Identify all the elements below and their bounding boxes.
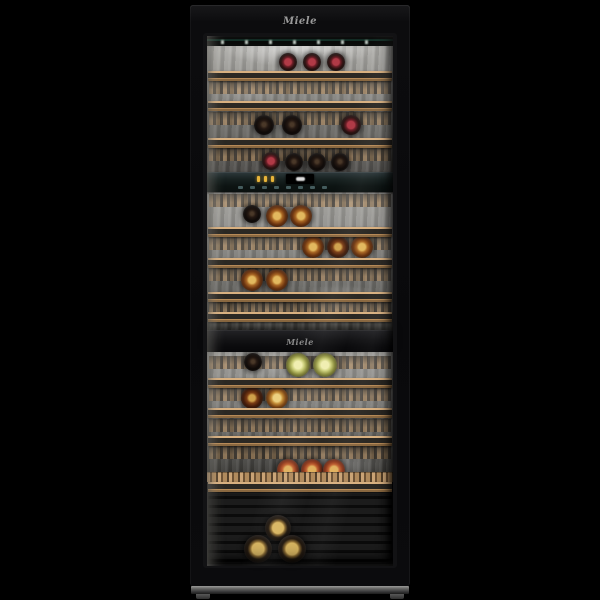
panel-display — [286, 174, 314, 184]
touch-key-7-icon — [310, 186, 315, 189]
led-dots-icon — [212, 40, 388, 44]
wine-bottle-amber-dark — [327, 236, 349, 258]
shelf-slats — [209, 81, 391, 94]
display-readout — [296, 177, 305, 181]
plinth — [191, 586, 409, 594]
wine-bottle-dark — [243, 205, 261, 223]
product-photo-stage: Miele Miele — [0, 0, 600, 600]
wine-bottle-dark — [244, 353, 262, 371]
wine-bottle-white — [286, 353, 310, 377]
wine-bottle-amber — [241, 269, 263, 291]
temperature-indicators — [257, 176, 274, 182]
touch-key-1-icon — [238, 186, 243, 189]
shelf-slats — [209, 268, 391, 281]
zone-divider: Miele — [206, 330, 394, 352]
touch-key-3-icon — [262, 186, 267, 189]
shelf-front-rail — [208, 258, 392, 268]
wine-bottle-amber-light — [266, 387, 288, 409]
brand-logo-top: Miele — [190, 15, 410, 29]
wine-bottle-dark-red — [341, 115, 361, 135]
wine-bottle-amber — [302, 236, 324, 258]
wine-bottle-dark — [331, 153, 349, 171]
shelf-front-rail — [208, 436, 392, 446]
temp-segment-2-icon — [264, 176, 267, 182]
wine-bottle-amber-dark — [241, 387, 263, 409]
wine-bottle-dark-red — [262, 152, 280, 170]
wine-bottle-dark-red — [327, 53, 345, 71]
wood-shelf-full — [207, 472, 393, 482]
shelf-front-rail — [208, 408, 392, 418]
shelf-slats — [209, 419, 391, 432]
brand-logo-divider: Miele — [286, 337, 314, 347]
shelf-front-rail — [208, 71, 392, 81]
shelf-slats — [209, 388, 391, 401]
touch-key-6-icon — [298, 186, 303, 189]
wine-bottle-amber — [266, 269, 288, 291]
wine-bottle-dark — [308, 153, 326, 171]
wine-bottle-amber — [351, 236, 373, 258]
wine-bottle-dark — [285, 153, 303, 171]
touch-key-2-icon — [250, 186, 255, 189]
shelf-front-rail — [208, 482, 392, 492]
wine-bottle-dark — [254, 115, 274, 135]
touch-controls — [238, 186, 327, 189]
shelf-front-rail — [208, 378, 392, 388]
wine-bottle-dark — [282, 115, 302, 135]
wine-bottle-amber — [290, 205, 312, 227]
control-panel — [206, 172, 394, 192]
wine-bottle-amber — [266, 205, 288, 227]
shelf-front-rail — [208, 292, 392, 302]
shelf-slats — [209, 446, 391, 459]
shelf-front-rail — [208, 101, 392, 111]
wine-bottle-dark-red — [279, 53, 297, 71]
shelf-front-rail — [208, 138, 392, 148]
shelf-front-rail — [208, 312, 392, 322]
shelf-front-rail — [208, 227, 392, 237]
wine-bottle-dark-red — [303, 53, 321, 71]
wine-bottle-cellar — [278, 535, 306, 563]
touch-key-4-icon — [274, 186, 279, 189]
temp-segment-1-icon — [257, 176, 260, 182]
touch-key-8-icon — [322, 186, 327, 189]
led-light-strip — [207, 36, 393, 46]
wine-bottle-white — [313, 353, 337, 377]
touch-key-5-icon — [286, 186, 291, 189]
wine-bottle-cellar — [244, 535, 272, 563]
temp-segment-3-icon — [271, 176, 274, 182]
